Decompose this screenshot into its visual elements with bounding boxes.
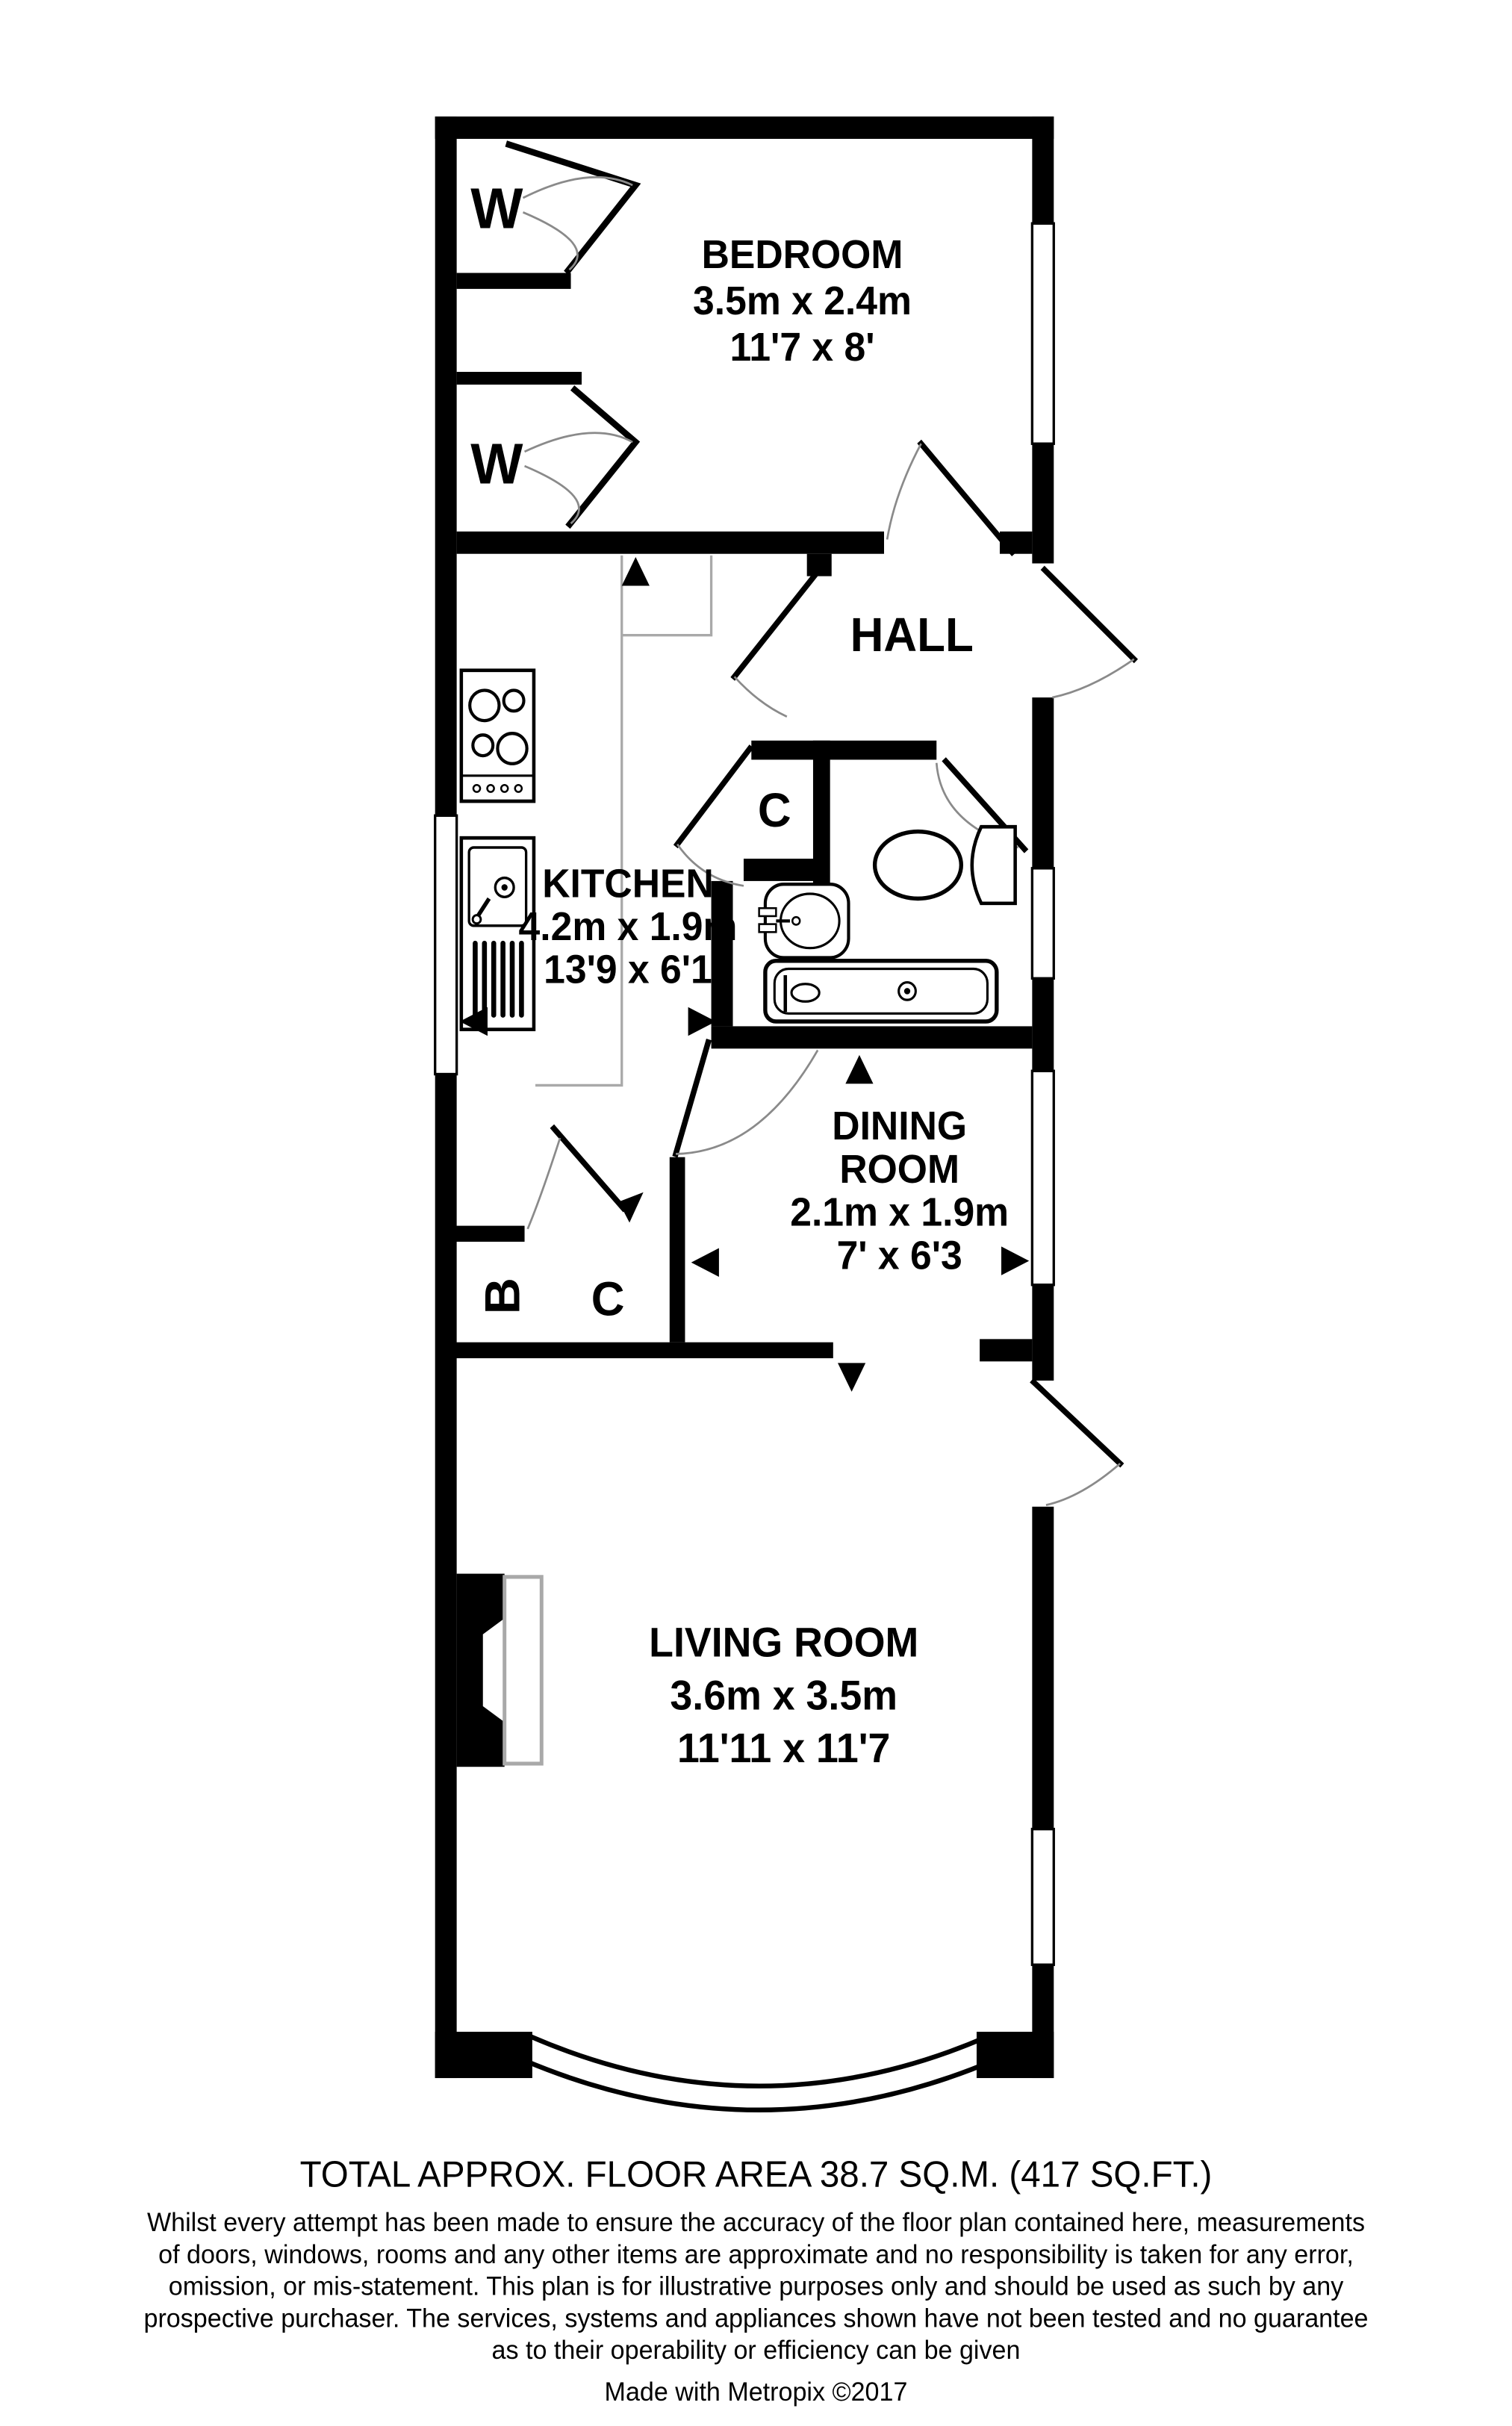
bedroom-metric: 3.5m x 2.4m (693, 279, 912, 323)
bathroom-topleft-wall (744, 859, 827, 881)
boiler-top-wall (454, 1226, 525, 1242)
living-top-wall-left (454, 1343, 833, 1358)
wall-right-2 (1032, 444, 1054, 563)
disclaimer-line-1: Whilst every attempt has been made to en… (147, 2209, 1365, 2238)
living-top-wall-right (980, 1339, 1032, 1361)
living-imperial: 11'11 x 11'7 (677, 1725, 890, 1771)
cupboard-label-upper: C (758, 784, 791, 837)
living-metric: 3.6m x 3.5m (670, 1672, 897, 1718)
dining-name-line2: ROOM (839, 1147, 959, 1192)
bathtub-icon (765, 961, 997, 1021)
hall-name: HALL (850, 609, 974, 662)
wall-top (435, 116, 1054, 139)
wardrobe-bifold-1 (506, 143, 636, 273)
wall-right-1 (1032, 116, 1054, 223)
boiler-label: B (476, 1278, 531, 1314)
arrow-right-dining (1001, 1246, 1029, 1275)
kitchen-fixtures (461, 556, 712, 1086)
hob-icon (461, 671, 534, 801)
counter-edge (535, 556, 712, 1086)
cupboard-top-wall (751, 741, 936, 760)
wall-right-6 (1032, 1507, 1054, 1829)
bay-window (525, 2036, 994, 2109)
disclaimer-line-3: omission, or mis-statement. This plan is… (169, 2272, 1344, 2301)
dining-metric: 2.1m x 1.9m (790, 1190, 1009, 1235)
front-door (1045, 570, 1134, 697)
arrow-up-dining (845, 1055, 873, 1083)
wardrobe-label-2: W (470, 432, 523, 497)
living-external-door (1033, 1382, 1120, 1505)
arrow-up-kitchen (622, 557, 650, 585)
disclaimer-line-2: of doors, windows, rooms and any other i… (158, 2240, 1354, 2269)
wardrobe-divider-2 (457, 372, 582, 385)
bathroom-fixtures (759, 827, 1015, 1021)
cupboard2-right-wall (670, 1157, 685, 1343)
wardrobe-bifold-2 (525, 388, 636, 526)
dining-window (1032, 1071, 1054, 1284)
cupboard-label-lower: C (591, 1272, 625, 1325)
bedroom-door (887, 444, 1012, 552)
bathroom-left-wall (712, 881, 733, 1027)
kitchen-imperial: 13'9 x 6'1 (544, 948, 712, 992)
door-arrow (619, 1192, 644, 1223)
disclaimer-line-4: prospective purchaser. The services, sys… (143, 2304, 1368, 2333)
wall-left-lower (435, 1074, 457, 2078)
bedroom-window (1032, 223, 1054, 444)
bedroom-imperial: 11'7 x 8' (729, 325, 874, 370)
dining-imperial: 7' x 6'3 (837, 1234, 962, 1278)
kitchen-name: KITCHEN (542, 861, 714, 906)
wall-right-3 (1032, 697, 1054, 868)
footer: TOTAL APPROX. FLOOR AREA 38.7 SQ.M. (417… (143, 2154, 1368, 2407)
wall-right-4 (1032, 978, 1054, 1071)
kitchen-metric: 4.2m x 1.9m (519, 904, 738, 949)
wall-left-upper (435, 116, 457, 815)
walls (435, 116, 1054, 2078)
wardrobe-label-1: W (470, 177, 523, 241)
living-name: LIVING ROOM (649, 1620, 918, 1666)
basin-icon (759, 884, 849, 957)
arrow-down-dining (838, 1363, 865, 1391)
disclaimer-line-5: as to their operability or efficiency ca… (492, 2336, 1021, 2366)
wall-right-5 (1032, 1285, 1054, 1381)
floor-plan: W W BEDROOM 3.5m x 2.4m 11'7 x 8' HALL C… (0, 0, 1512, 2426)
credit-text: Made with Metropix ©2017 (605, 2377, 908, 2407)
bay-corner-left (435, 2032, 532, 2078)
bedroom-name: BEDROOM (702, 232, 903, 277)
total-area-text: TOTAL APPROX. FLOOR AREA 38.7 SQ.M. (417… (300, 2154, 1213, 2195)
toilet-icon (875, 827, 1015, 903)
arrow-left-dining (691, 1248, 719, 1277)
kitchen-door (735, 570, 820, 717)
living-window (1032, 1829, 1054, 1965)
bathroom-bottom-wall (712, 1026, 1033, 1048)
dining-door (676, 1042, 818, 1154)
wall-bedroom-bottom (457, 532, 884, 554)
kitchen-window (435, 815, 457, 1074)
wardrobe-divider-1 (457, 273, 571, 289)
bathroom-window (1032, 868, 1054, 978)
cupboard2-door (528, 1128, 644, 1229)
dining-name-line1: DINING (832, 1104, 967, 1148)
